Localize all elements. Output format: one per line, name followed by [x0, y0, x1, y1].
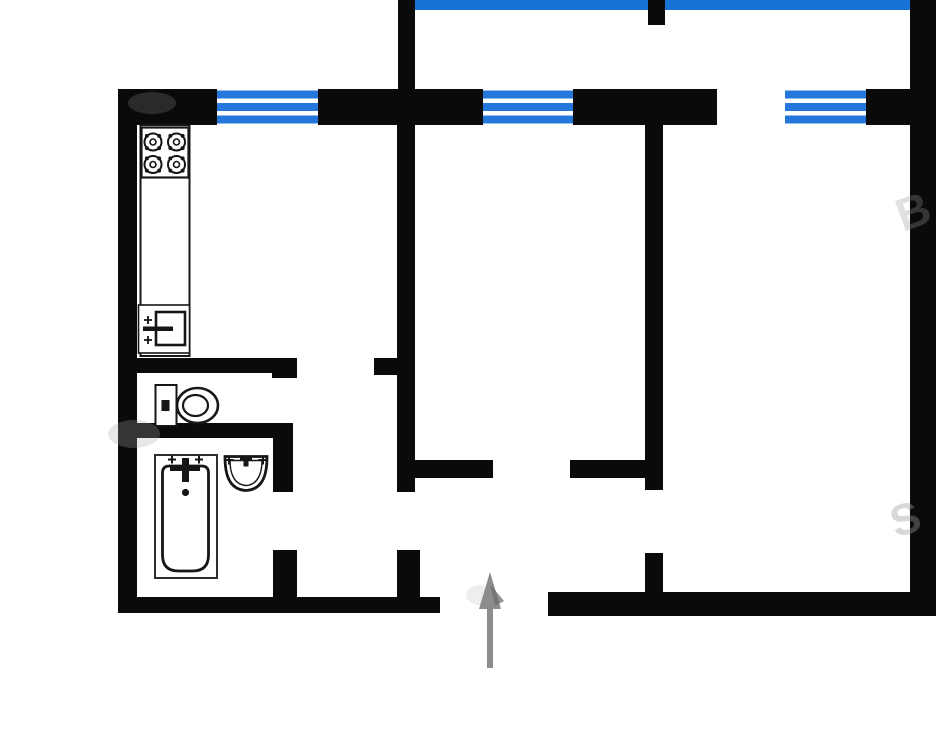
stove-burner-1-jet	[145, 134, 149, 138]
kitchen-window-pane-1	[217, 91, 318, 99]
stove-burner-1-jet	[157, 134, 161, 138]
stove-burner-1-jet	[157, 146, 161, 150]
bathroom-east-wall	[273, 423, 293, 492]
room-corridor	[297, 375, 397, 597]
stove-burner-1-center	[150, 139, 156, 145]
stove-burner-3-center	[150, 162, 156, 168]
stove-burner-3-jet	[157, 156, 161, 160]
stove-burner-4-jet	[181, 156, 185, 160]
bathroom-door-stub	[273, 550, 297, 597]
hall-top-wall-right	[570, 460, 645, 478]
bathtub-spout	[182, 458, 189, 482]
top-wall-segment-3	[573, 89, 717, 125]
entrance-arrow-shaft	[487, 603, 493, 668]
kitchen-window-pane-2	[217, 103, 318, 111]
stove-burner-4-jet	[181, 169, 185, 173]
stove-burner-3-jet	[145, 169, 149, 173]
stove-burner-2-jet	[168, 134, 172, 138]
bedroom-window-pane-3	[785, 116, 866, 124]
floor-plan-canvas: BS	[0, 0, 940, 740]
stove-burner-4-jet	[168, 169, 172, 173]
stove-burner-2-jet	[181, 134, 185, 138]
living-room-window-pane-1	[483, 91, 573, 99]
living-room-window-pane-2	[483, 103, 573, 111]
stove-burner-4-center	[174, 162, 180, 168]
balcony-divider-stub	[648, 0, 665, 25]
bottom-wall-right	[548, 592, 936, 616]
kitchen-south-wall	[118, 358, 272, 373]
top-wall-segment-2	[318, 89, 483, 125]
kitchen-south-wall-endcap	[272, 358, 297, 378]
room-bedroom	[663, 125, 910, 592]
floor-plan-image: BS	[0, 0, 940, 740]
kitchen-sink-spout	[143, 327, 173, 332]
bathtub-drain	[182, 489, 189, 496]
living-room-window-pane-3	[483, 116, 573, 124]
bedroom-left-wall	[645, 125, 663, 490]
stove-burner-2-jet	[168, 146, 172, 150]
room-entrance-hall	[420, 478, 645, 592]
kitchen-window-pane-3	[217, 116, 318, 124]
watermark-smudge-1	[128, 92, 176, 114]
hall-top-wall-left	[415, 460, 493, 478]
stove-burner-1-jet	[145, 146, 149, 150]
hall-stub-left	[397, 550, 420, 597]
bedroom-window-pane-2	[785, 103, 866, 111]
bedroom-window-pane-1	[785, 91, 866, 99]
washbasin-spout	[244, 456, 249, 467]
toilet-tank-button	[162, 400, 170, 411]
balcony-left-wall	[398, 0, 415, 89]
outer-left-wall	[118, 89, 137, 613]
living-room-left-wall	[397, 125, 415, 492]
stove-burner-3-jet	[145, 156, 149, 160]
bedroom-door-stub	[645, 553, 663, 592]
watermark-smudge-2	[108, 420, 160, 448]
stove-burner-4-jet	[168, 156, 172, 160]
stove-burner-2-center	[174, 139, 180, 145]
stove-burner-3-jet	[157, 169, 161, 173]
room-living	[415, 125, 645, 460]
bottom-wall-left	[118, 597, 440, 613]
stove-burner-2-jet	[181, 146, 185, 150]
kitchen-door-jamb	[374, 358, 397, 375]
